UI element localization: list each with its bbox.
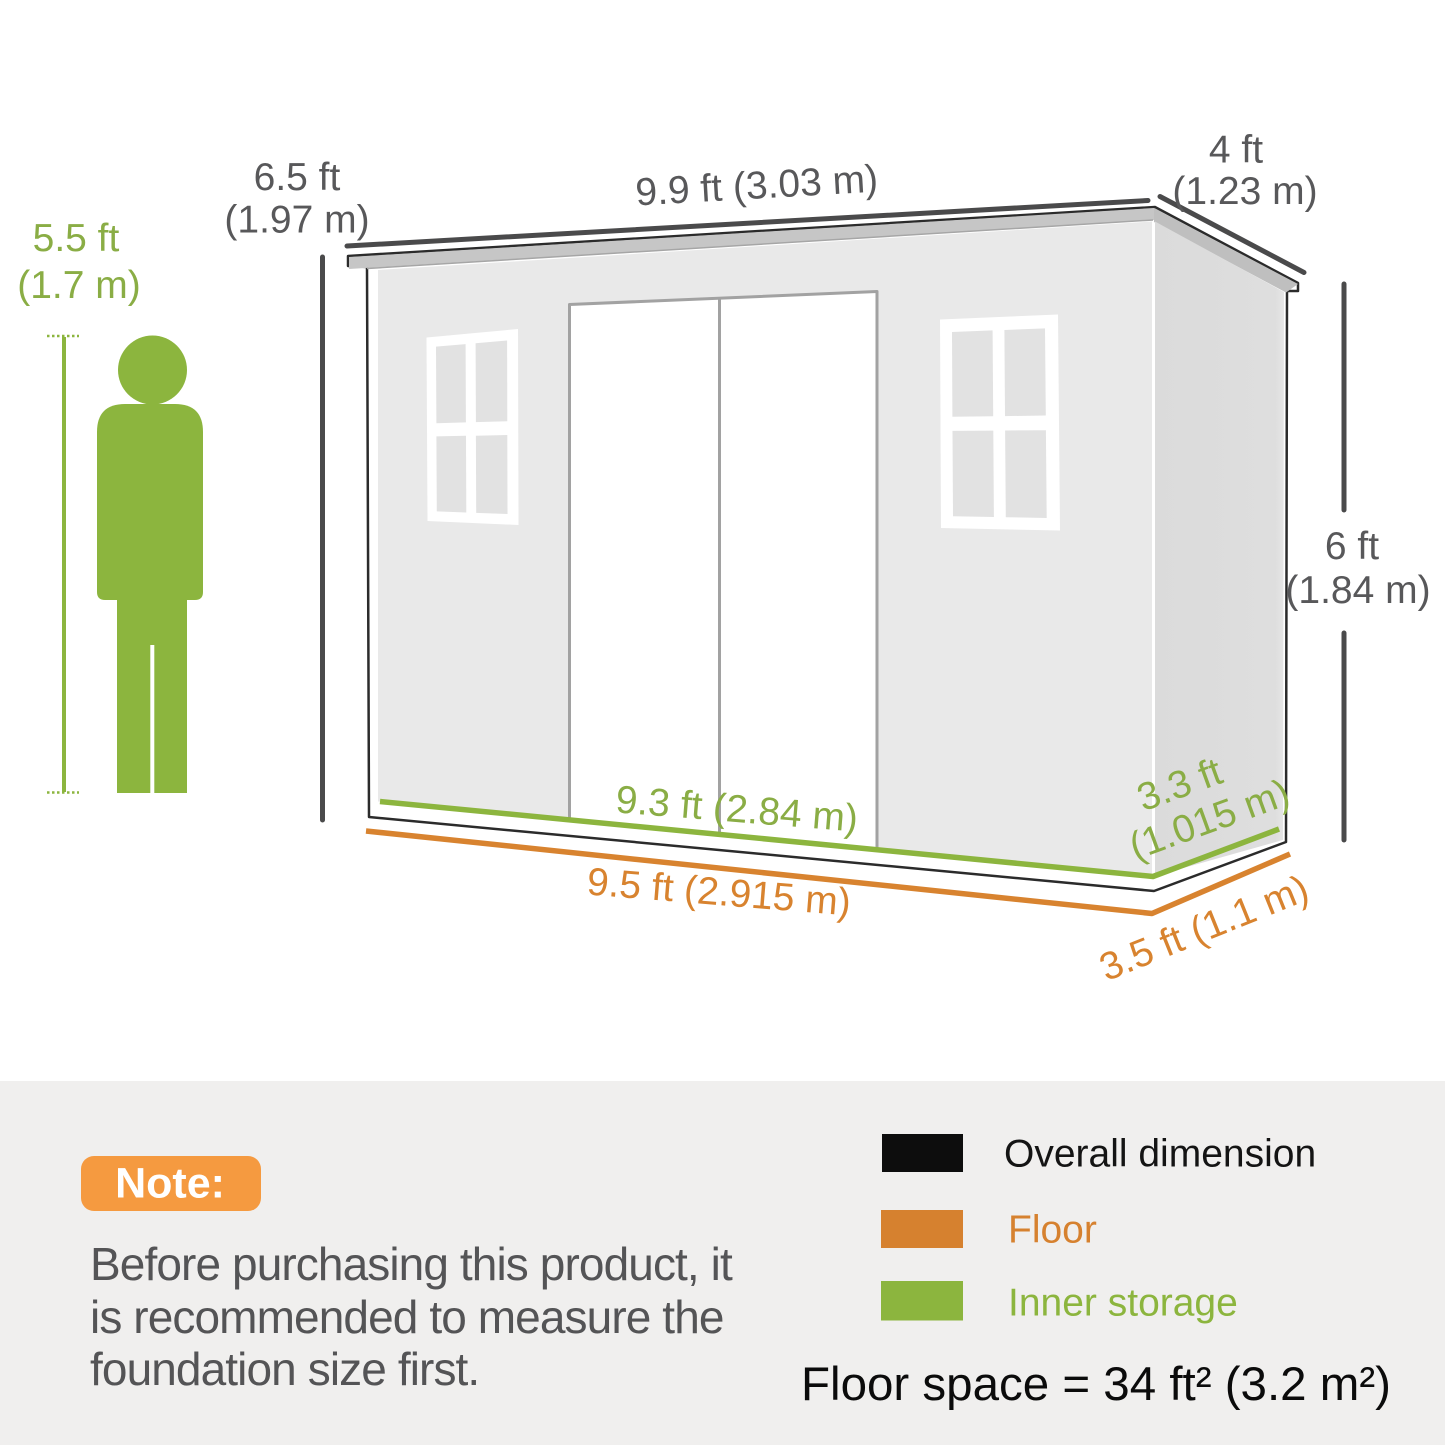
svg-text:(1.97 m): (1.97 m) bbox=[224, 199, 369, 242]
svg-text:6.5 ft: 6.5 ft bbox=[254, 156, 341, 199]
svg-text:Floor space = 34 ft² (3.2 m²): Floor space = 34 ft² (3.2 m²) bbox=[801, 1358, 1391, 1411]
svg-text:foundation size first.: foundation size first. bbox=[90, 1343, 479, 1395]
svg-text:6 ft: 6 ft bbox=[1325, 525, 1379, 568]
svg-text:Before purchasing this product: Before purchasing this product, it bbox=[90, 1238, 733, 1290]
svg-text:Floor: Floor bbox=[1008, 1209, 1097, 1252]
svg-text:4 ft: 4 ft bbox=[1209, 129, 1263, 172]
svg-text:5.5 ft: 5.5 ft bbox=[33, 217, 120, 260]
svg-text:(1.84 m): (1.84 m) bbox=[1285, 569, 1430, 612]
svg-text:Overall dimension: Overall dimension bbox=[1004, 1133, 1316, 1176]
svg-text:(1.23 m): (1.23 m) bbox=[1172, 170, 1317, 213]
svg-text:Note:: Note: bbox=[115, 1160, 225, 1208]
svg-text:Inner storage: Inner storage bbox=[1008, 1282, 1238, 1325]
svg-text:(1.7 m): (1.7 m) bbox=[17, 264, 141, 307]
svg-text:is recommended to measure the: is recommended to measure the bbox=[90, 1291, 724, 1343]
